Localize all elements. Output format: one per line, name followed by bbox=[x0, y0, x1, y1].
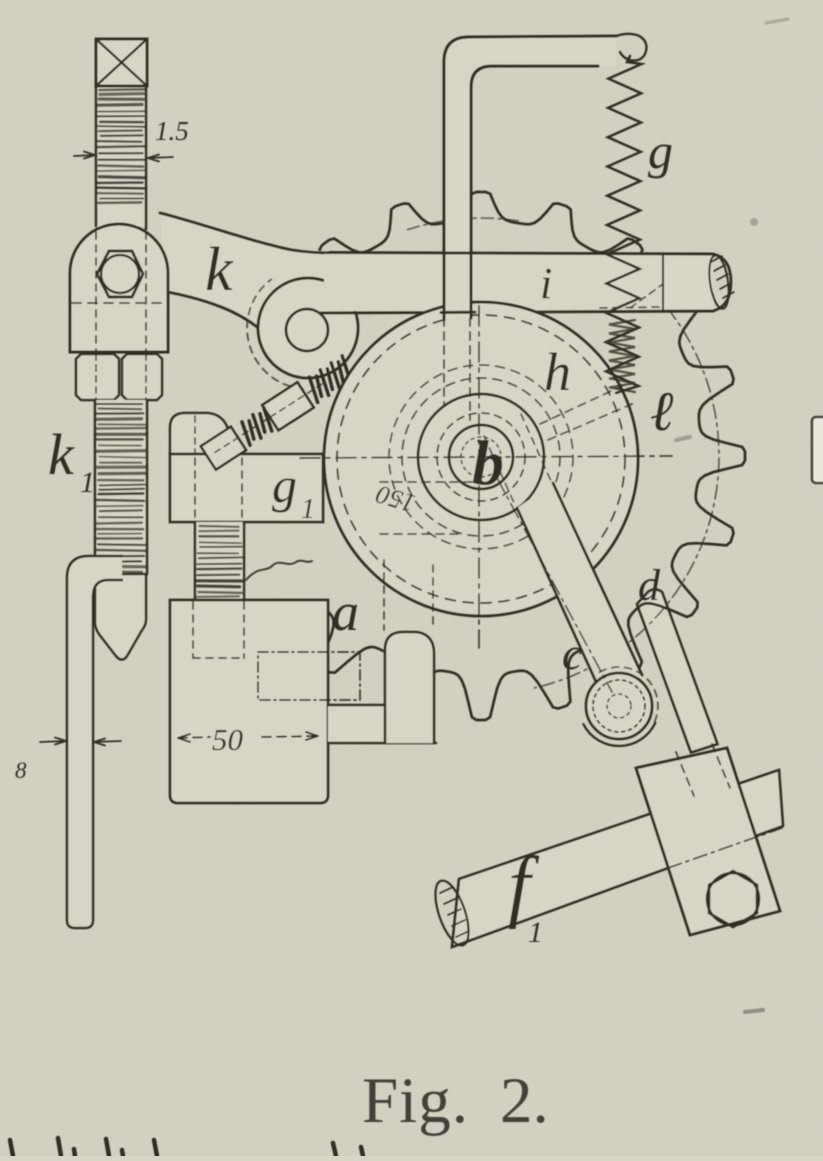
svg-text:c: c bbox=[562, 628, 582, 679]
svg-text:1: 1 bbox=[301, 494, 315, 525]
svg-text:8: 8 bbox=[15, 758, 27, 783]
svg-text:1: 1 bbox=[528, 916, 543, 949]
svg-text:g: g bbox=[272, 457, 297, 513]
svg-text:h: h bbox=[544, 342, 571, 402]
svg-text:i: i bbox=[540, 259, 552, 308]
svg-text:1.5: 1.5 bbox=[155, 116, 189, 146]
svg-text:Fig.: Fig. bbox=[362, 1065, 469, 1137]
svg-text:50: 50 bbox=[212, 722, 244, 757]
svg-text:b: b bbox=[472, 427, 504, 498]
svg-text:g: g bbox=[648, 123, 673, 179]
svg-text:ℓ: ℓ bbox=[650, 381, 674, 443]
svg-text:d: d bbox=[638, 561, 661, 610]
svg-text:2.: 2. bbox=[500, 1065, 549, 1137]
svg-text:k: k bbox=[48, 422, 75, 487]
svg-text:a: a bbox=[332, 582, 359, 642]
svg-text:k: k bbox=[205, 236, 234, 304]
svg-text:1: 1 bbox=[80, 466, 95, 499]
